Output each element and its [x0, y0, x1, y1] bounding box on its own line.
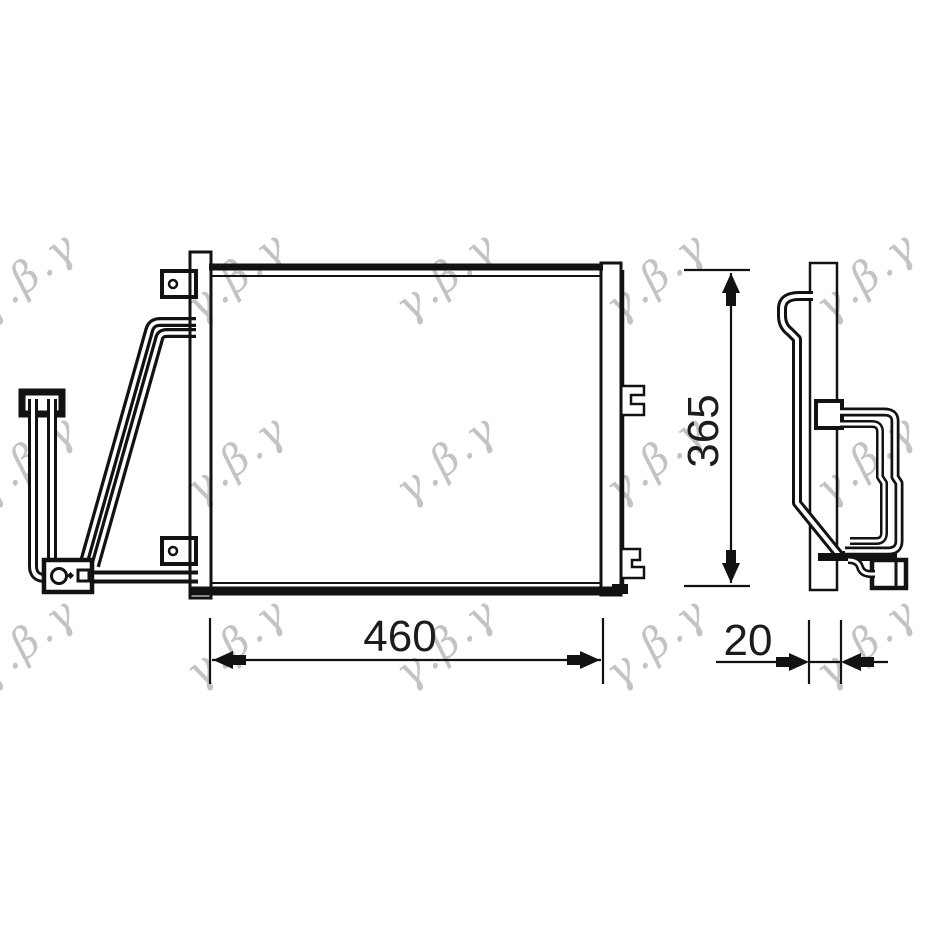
watermark-text: γ.β.γ — [0, 221, 87, 331]
dimension-height: 365 — [679, 270, 750, 586]
bracket-hole — [169, 547, 177, 555]
watermark-text: γ.β.γ — [175, 404, 297, 514]
condenser-technical-drawing: γ.β.γ γ.β.γ γ.β.γ γ.β.γ γ.β.γ γ.β.γ γ.β.… — [0, 0, 950, 950]
side-fitting-block — [872, 560, 906, 588]
arrow-right-icon — [776, 653, 809, 671]
dimension-depth-label: 20 — [724, 616, 773, 665]
pipe-connector-block — [44, 560, 92, 592]
port-large — [52, 569, 67, 584]
port-square — [78, 570, 89, 581]
watermark-text: γ.β.γ — [0, 587, 87, 697]
front-view — [22, 252, 644, 598]
arrow-up-icon — [722, 273, 740, 306]
drawing-canvas: γ.β.γ γ.β.γ γ.β.γ γ.β.γ γ.β.γ γ.β.γ γ.β.… — [0, 0, 950, 950]
watermark-text: γ.β.γ — [175, 587, 297, 697]
dimension-width-label: 460 — [363, 612, 436, 661]
watermark-text: γ.β.γ — [595, 221, 717, 331]
core-bottom-plate — [190, 583, 628, 594]
bracket-hole — [169, 280, 177, 288]
side-bracket-box — [816, 401, 842, 428]
arrow-right-icon — [567, 651, 600, 669]
watermark-text: γ.β.γ — [595, 587, 717, 697]
watermark-text: γ.β.γ — [385, 404, 507, 514]
watermark-text: γ.β.γ — [805, 221, 927, 331]
watermark-layer: γ.β.γ γ.β.γ γ.β.γ γ.β.γ γ.β.γ γ.β.γ γ.β.… — [0, 221, 927, 697]
watermark-text: γ.β.γ — [805, 587, 927, 697]
watermark-text: γ.β.γ — [0, 404, 87, 514]
arrow-down-icon — [722, 550, 740, 583]
dimension-height-label: 365 — [679, 394, 728, 467]
